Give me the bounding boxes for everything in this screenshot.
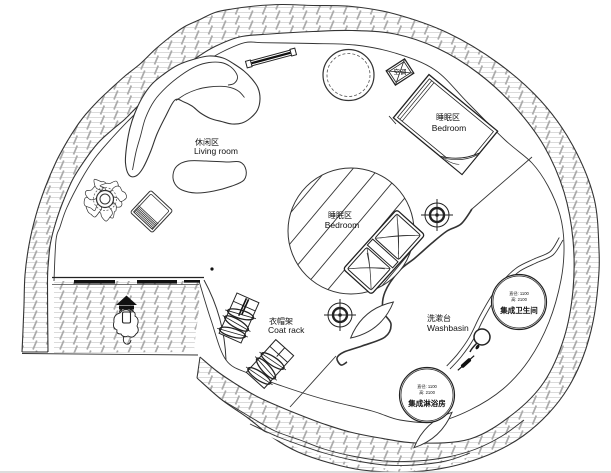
svg-text:洗漱台: 洗漱台 — [427, 313, 451, 323]
svg-text:高: 2100: 高: 2100 — [511, 296, 528, 303]
svg-text:集成淋浴房: 集成淋浴房 — [407, 398, 446, 408]
svg-text:Living room: Living room — [194, 146, 238, 156]
svg-text:睡眠区: 睡眠区 — [328, 211, 352, 220]
svg-text:Washbasin: Washbasin — [427, 323, 469, 333]
svg-text:集成卫生间: 集成卫生间 — [499, 305, 538, 315]
svg-text:Coat rack: Coat rack — [268, 325, 305, 335]
svg-text:Bedroom: Bedroom — [325, 220, 360, 230]
svg-text:空调: 空调 — [394, 67, 407, 76]
svg-text:Bedroom: Bedroom — [432, 123, 467, 133]
svg-text:睡眠区: 睡眠区 — [436, 113, 460, 122]
svg-text:高: 2100: 高: 2100 — [419, 389, 436, 396]
svg-text:直径: 1100: 直径: 1100 — [509, 290, 529, 296]
svg-text:直径: 1100: 直径: 1100 — [417, 383, 437, 389]
